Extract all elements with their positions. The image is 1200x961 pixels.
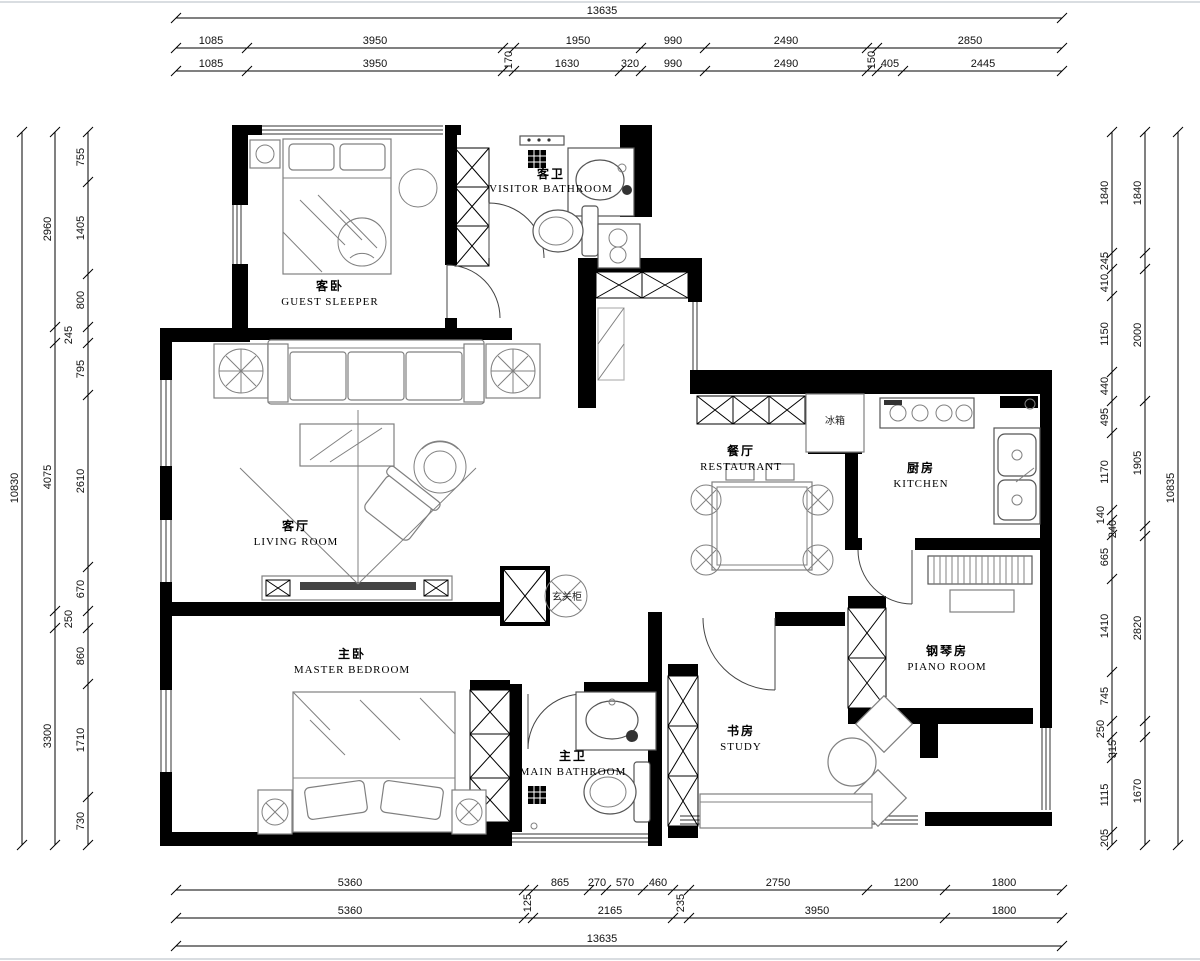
dimension-label: 3950 xyxy=(805,905,829,917)
label-living-en: LIVING ROOM xyxy=(254,536,339,548)
restaurant-wall-cabinets xyxy=(697,396,805,424)
dimension-label: 1200 xyxy=(894,877,918,889)
dimension-label: 2750 xyxy=(766,877,790,889)
dimension-label: 800 xyxy=(75,291,87,309)
dimension-label: 1405 xyxy=(75,216,87,240)
dimension-label: 245 xyxy=(1099,252,1111,270)
door-guest xyxy=(447,265,500,318)
corridor-shelf xyxy=(598,308,624,380)
dimension-label: 670 xyxy=(75,580,87,598)
label-kitchen-en: KITCHEN xyxy=(893,478,948,490)
study-wardrobe xyxy=(668,676,698,826)
stove xyxy=(880,398,974,428)
dimension-label: 1115 xyxy=(1099,784,1111,807)
master-bedroom-furniture xyxy=(258,692,486,834)
study-furniture xyxy=(700,794,872,828)
dimension-label: 3950 xyxy=(363,58,387,70)
sofa-side-table-right xyxy=(486,344,540,398)
label-entry-cabinet: 玄关柜 xyxy=(552,590,582,603)
window-master-left xyxy=(158,690,174,772)
dimension-label: 1085 xyxy=(199,58,223,70)
sofa-side-table-left xyxy=(214,344,268,398)
dimension-label: 865 xyxy=(551,877,569,889)
dining-table xyxy=(712,482,812,570)
visitor-basin xyxy=(568,148,634,216)
label-master-zh: 主卧 xyxy=(338,646,366,661)
label-visitor-bath-en: VISITOR BATHROOM xyxy=(489,183,613,195)
study-desk xyxy=(700,794,872,828)
dimension-label: 460 xyxy=(649,877,667,889)
dimension-label: 495 xyxy=(1099,408,1111,426)
door-study xyxy=(703,618,775,690)
shower-drain xyxy=(528,786,546,829)
dimension-label: 315 xyxy=(1107,740,1119,758)
dimension-label: 140 xyxy=(1095,506,1107,524)
dimension-label: 4075 xyxy=(42,465,54,489)
label-guest-zh: 客卧 xyxy=(315,278,344,293)
dimension-label: 2000 xyxy=(1132,323,1144,347)
guest-bed xyxy=(283,139,391,274)
guest-room-furniture xyxy=(250,139,437,274)
label-main-bath-en: MAIN BATHROOM xyxy=(520,766,627,778)
label-fridge: 冰箱 xyxy=(825,414,845,427)
label-restaurant-zh: 餐厅 xyxy=(727,443,755,458)
restaurant-furniture xyxy=(691,464,833,575)
nightstand xyxy=(250,140,280,168)
dimension-label: 1170 xyxy=(1099,460,1111,484)
piano xyxy=(928,556,1032,584)
label-study-zh: 书房 xyxy=(727,723,755,738)
dimension-label: 755 xyxy=(75,148,87,166)
dimension-label: 3300 xyxy=(42,724,54,748)
dimension-label: 1410 xyxy=(1099,614,1111,638)
dimension-label: 2490 xyxy=(774,58,798,70)
dimension-label: 125 xyxy=(522,894,534,912)
dimension-label: 13635 xyxy=(587,5,618,17)
side-table xyxy=(399,169,437,207)
dimension-label: 250 xyxy=(63,610,75,628)
window-mainbath-bottom xyxy=(512,834,648,842)
label-study-en: STUDY xyxy=(720,741,762,753)
floor-plan-canvas: 1363510853950195099024902850170150108539… xyxy=(0,0,1200,961)
dimension-label: 410 xyxy=(1099,274,1111,292)
living-room-furniture xyxy=(214,340,540,600)
master-bed xyxy=(293,692,455,832)
label-living-zh: 客厅 xyxy=(281,518,310,533)
dimension-chain xyxy=(171,66,1067,76)
washer-cabinet xyxy=(598,224,640,268)
dimension-label: 320 xyxy=(621,58,639,70)
door-main-bath xyxy=(528,694,583,749)
dimension-label: 1670 xyxy=(1132,779,1144,803)
dimension-label: 205 xyxy=(1099,829,1111,847)
dimension-label: 440 xyxy=(1099,377,1111,395)
label-restaurant-en: RESTAURANT xyxy=(700,461,782,473)
dimension-label: 5360 xyxy=(338,877,362,889)
dimension-label: 2850 xyxy=(958,35,982,47)
dimension-label: 1905 xyxy=(1132,451,1144,475)
window-piano-right xyxy=(1042,728,1050,810)
label-piano-zh: 钢琴房 xyxy=(926,643,968,658)
dimension-label: 2490 xyxy=(774,35,798,47)
dimension-label: 3950 xyxy=(363,35,387,47)
dimension-label: 665 xyxy=(1099,548,1111,566)
sofa xyxy=(268,340,484,404)
dimension-label: 570 xyxy=(616,877,634,889)
dimension-label: 990 xyxy=(664,58,682,70)
dimension-label: 10830 xyxy=(9,473,21,504)
dimension-label: 13635 xyxy=(587,933,618,945)
dimension-label: 5360 xyxy=(338,905,362,917)
dimension-label: 240 xyxy=(1107,520,1119,538)
piano-room-cabinet xyxy=(848,608,886,708)
hall-cabinet xyxy=(455,148,489,266)
dimension-label: 245 xyxy=(63,326,75,344)
dimension-label: 150 xyxy=(866,51,878,69)
visitor-bathroom-fixtures xyxy=(520,136,640,268)
kitchen-sink xyxy=(994,428,1040,524)
dimension-label: 1840 xyxy=(1132,181,1144,205)
lounge-chair xyxy=(359,465,441,545)
dimension-label: 1840 xyxy=(1099,181,1111,205)
dimension-label: 745 xyxy=(1099,687,1111,705)
dimension-chain xyxy=(171,13,1067,23)
kitchen-fixtures xyxy=(806,394,1040,524)
door-piano xyxy=(858,550,912,604)
nightstand-right xyxy=(452,790,486,834)
dimension-chain xyxy=(171,43,1067,53)
dimension-label: 2610 xyxy=(75,469,87,493)
dimension-label: 2165 xyxy=(598,905,622,917)
window-guest-left xyxy=(233,205,241,264)
shower-head-icon xyxy=(520,136,564,168)
main-bathroom-fixtures xyxy=(528,692,656,829)
label-guest-en: GUEST SLEEPER xyxy=(281,296,378,308)
dimension-label: 1630 xyxy=(555,58,579,70)
dimension-label: 1800 xyxy=(992,905,1016,917)
glass-partition-restaurant xyxy=(693,302,697,370)
dimension-label: 860 xyxy=(75,647,87,665)
dimension-label: 2960 xyxy=(42,217,54,241)
coffee-table xyxy=(300,424,394,466)
dimension-label: 1085 xyxy=(199,35,223,47)
dimension-label: 405 xyxy=(881,58,899,70)
label-master-en: MASTER BEDROOM xyxy=(294,664,410,676)
label-main-bath-zh: 主卫 xyxy=(559,748,587,763)
dimension-label: 1800 xyxy=(992,877,1016,889)
dimension-label: 10835 xyxy=(1165,473,1177,504)
dimension-label: 1150 xyxy=(1099,322,1111,346)
main-basin xyxy=(576,692,656,750)
label-kitchen-zh: 厨房 xyxy=(907,460,935,475)
label-piano-en: PIANO ROOM xyxy=(907,661,986,673)
nightstand-left xyxy=(258,790,292,834)
floor-plan-page: 1363510853950195099024902850170150108539… xyxy=(0,0,1200,961)
dimension-label: 730 xyxy=(75,812,87,830)
dimension-label: 250 xyxy=(1095,720,1107,738)
dimension-chain xyxy=(171,941,1067,951)
dimension-chain xyxy=(1140,127,1150,850)
dimension-label: 795 xyxy=(75,360,87,378)
dimension-label: 2445 xyxy=(971,58,995,70)
dimension-label: 235 xyxy=(675,894,687,912)
dimension-label: 1710 xyxy=(75,728,87,752)
dimension-label: 1950 xyxy=(566,35,590,47)
label-visitor-bath-zh: 客卫 xyxy=(536,166,565,181)
piano-bench xyxy=(950,590,1014,612)
dimension-label: 270 xyxy=(588,877,606,889)
window-guest-top xyxy=(262,126,443,134)
dimension-label: 990 xyxy=(664,35,682,47)
dimension-label: 170 xyxy=(503,51,515,69)
dimension-label: 2820 xyxy=(1132,616,1144,640)
corridor-closet xyxy=(596,272,688,298)
